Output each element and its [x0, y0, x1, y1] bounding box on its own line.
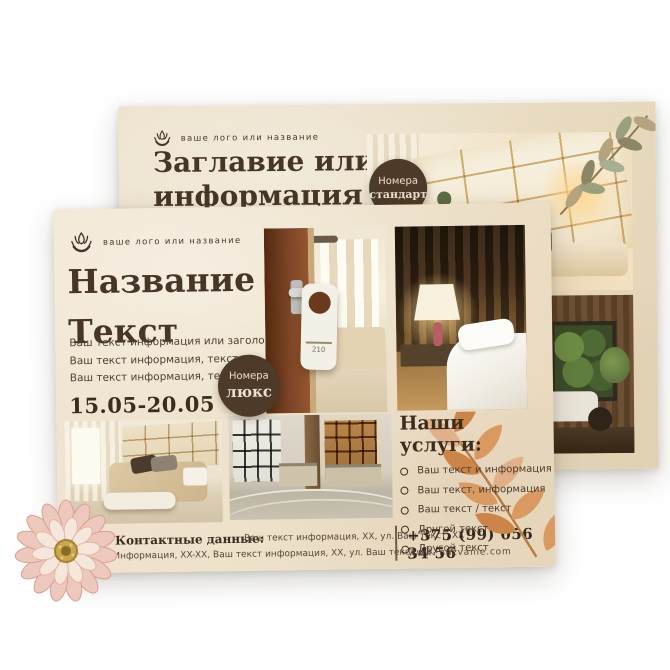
eucalyptus-leaf-decoration: [553, 110, 656, 221]
lamp-shade: [414, 284, 460, 321]
circle-bullet-icon: [400, 467, 408, 475]
tag-room-number: 210: [301, 345, 337, 354]
circle-bullet-icon: [401, 526, 409, 534]
door-hanger-tag: 210: [300, 283, 338, 370]
services-title: Наши услуги:: [399, 411, 552, 457]
balcony-floor: [546, 427, 634, 454]
reception-desk: [325, 464, 381, 487]
service-item-label: Другой текст: [418, 523, 489, 535]
service-item-label: Ваш текст, информация: [417, 483, 545, 496]
front-logo-text: ваше лого или название: [103, 235, 242, 247]
grey-pillow: [150, 454, 178, 472]
front-heading-line1: Название: [67, 255, 255, 308]
date-range: 15.05-20.05: [69, 391, 215, 418]
front-flyer: ваше лого или название Название Текст Ва…: [53, 203, 555, 574]
back-heading-line1: Заглавие илиБ: [153, 144, 400, 180]
badge-standart-line1: Номера: [378, 175, 418, 187]
service-item-label: Ваш текст и информация: [417, 464, 552, 477]
badge-lux-line1: Номера: [229, 370, 269, 383]
round-side-table: [588, 407, 612, 431]
service-item: Ваш текст / текст: [401, 503, 553, 516]
dahlia-flower-decoration: [14, 496, 122, 606]
back-logo-text: ваше лого или название: [181, 132, 320, 143]
back-heading: Заглавие илиБ информация: [153, 144, 400, 214]
lamp-base: [433, 322, 442, 346]
service-item-label: Другой текст: [418, 542, 489, 554]
service-item: Ваш текст, информация: [400, 483, 552, 496]
photo-bedroom-lamp: [395, 225, 528, 411]
room-bed: [331, 327, 386, 370]
badge-lux-line2: люкс: [226, 382, 272, 401]
reception-desk: [279, 463, 317, 487]
flyer-mockup-stage: ваше лого или название Заглавие илиБ инф…: [0, 0, 670, 670]
potted-tree: [600, 347, 630, 383]
services-list: Ваш текст и информация Ваш текст, информ…: [400, 464, 553, 555]
front-flyer-content: ваше лого или название Название Текст Ва…: [53, 203, 555, 574]
service-item: Другой текст: [401, 522, 553, 535]
service-item: Ваш текст и информация: [400, 464, 552, 477]
service-item: Другой текст: [401, 542, 553, 555]
photo-door-hanger: 210: [264, 227, 388, 414]
circle-bullet-icon: [401, 545, 409, 553]
front-logo: ваше лого или название: [68, 227, 242, 256]
window-grid: [232, 419, 281, 482]
window: [72, 428, 101, 484]
badge-standart-line2: стандарт: [369, 187, 427, 201]
photo-lobby-reception: [228, 414, 392, 520]
circle-bullet-icon: [401, 506, 409, 514]
tag-line: [306, 342, 332, 345]
tag-hole: [308, 292, 330, 314]
services-section: Наши услуги: Ваш текст и информация Ваш …: [399, 411, 553, 564]
photo-plant-wall-balcony: [545, 295, 634, 454]
contacts-label: Контактные данные:: [115, 532, 264, 548]
circle-bullet-icon: [400, 487, 408, 495]
lotus-logo-icon: [68, 229, 95, 256]
nightstand: [183, 467, 207, 485]
service-item-label: Ваш текст / текст: [418, 503, 512, 515]
